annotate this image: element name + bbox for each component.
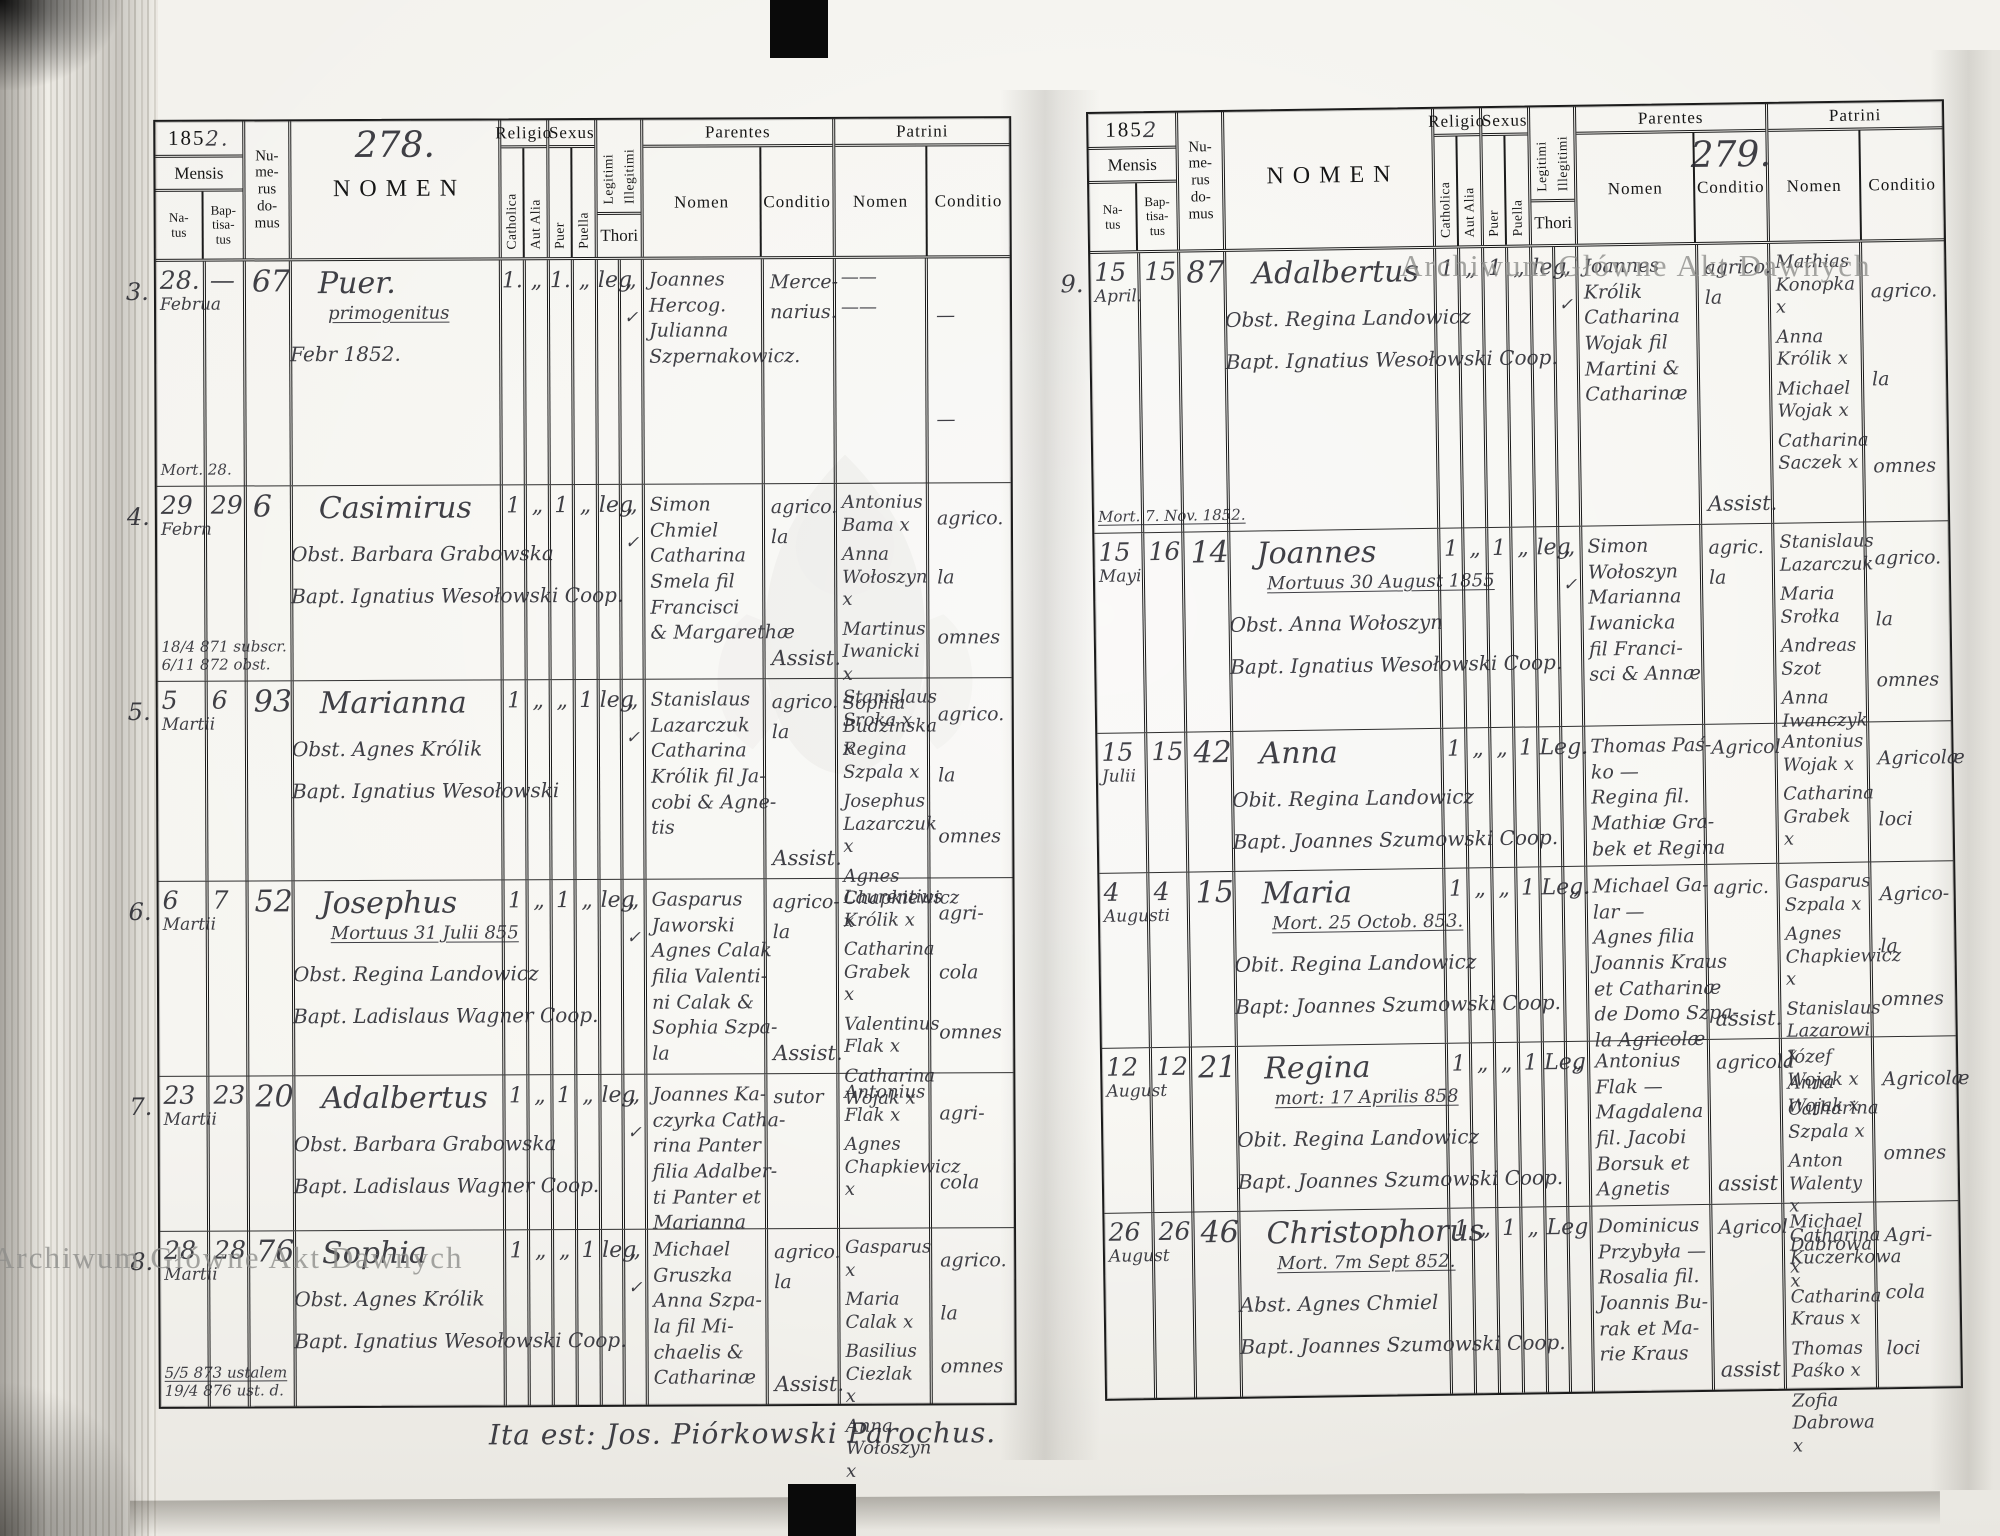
house-number-cell: 15 <box>1189 872 1238 1047</box>
patrini-conditio-cell: Agricolæloci <box>1869 721 1953 861</box>
register-row: 4.29Febrn18/4 871 subscr.6/11 872 obst.2… <box>157 483 1012 682</box>
parentes-label: Parentes <box>643 119 832 148</box>
natus-cell: 26August <box>1104 1213 1157 1399</box>
right-page-header: 279. 1852 Mensis Na- tus Bap- tisa- tus … <box>1088 101 1944 254</box>
patrini-name: Agnes Chapkiewicz x <box>1785 923 1868 992</box>
check-mark: ✓ <box>623 728 643 748</box>
catholica-label: Catholica <box>1437 181 1454 237</box>
row-number: 5. <box>128 698 151 726</box>
page-number-right: 279. <box>1690 134 1771 176</box>
baptisatus-day: 29 <box>207 492 244 517</box>
natus-day: 23 <box>163 1083 204 1108</box>
patrini-conditio-line: — <box>936 407 1008 433</box>
aut-alia-mark-cell: „ <box>526 260 551 484</box>
parents-name-line: la fil Mi- <box>653 1314 765 1340</box>
catholica-mark: 1 <box>504 690 525 712</box>
catholica-mark: 1 <box>503 495 524 517</box>
patrini-name: Catharina Kraus x <box>1790 1285 1873 1331</box>
patrini-conditio-line: omnes <box>938 824 1010 850</box>
thori-label: Thori <box>598 212 641 257</box>
house-number-cell: 67 <box>246 261 293 485</box>
catholica-mark: 1 <box>505 1085 526 1107</box>
natus-month: August <box>1106 1081 1147 1102</box>
legitimi-mark-cell: leg <box>598 260 622 484</box>
parents-name-line: Wojak fil <box>1584 330 1696 357</box>
baptisatus-day: 6 <box>208 687 245 712</box>
patrini-conditio-line: loci <box>1886 1335 1958 1362</box>
margin-note: Mort. 28. <box>161 461 202 480</box>
parents-name-line: Catharina <box>1584 304 1696 331</box>
catholica-label: Catholica <box>504 193 520 249</box>
register-row: 12August1221Reginamort: 17 Aprilis 858Ob… <box>1102 1036 1958 1214</box>
row-number: 3. <box>126 278 149 306</box>
patrini-conditio-cell: agrico.laomnes <box>1866 521 1951 721</box>
natus-month: August <box>1109 1246 1150 1267</box>
illegitimi-mark-cell <box>1562 727 1587 866</box>
margin-note: 19/4 876 ust. d. <box>165 1382 206 1401</box>
puella-mark: „ <box>577 890 598 912</box>
illegitimi-mark-cell: „✓ <box>1559 527 1585 726</box>
row-number: 7. <box>129 1093 152 1121</box>
puer-mark: 1 <box>1498 1218 1519 1240</box>
puer-mark: „ <box>554 1240 575 1262</box>
parents-conditio-line: Agricol <box>1711 732 1772 763</box>
illegitimi-mark: „ <box>623 690 643 712</box>
parents-name-line: Przybyła — <box>1598 1239 1710 1266</box>
parents-name-line: Joannes <box>649 267 761 293</box>
parents-name-line: Agnes Calak <box>652 939 764 965</box>
patrini-conditio-line: agrico. <box>1875 545 1947 572</box>
parents-name-line: rina Panter <box>653 1134 765 1160</box>
illegitimi-mark: „ <box>622 495 642 517</box>
right-page-table: 279. 1852 Mensis Na- tus Bap- tisa- tus … <box>1086 99 1963 1401</box>
register-row: 5.5Martii693MariannaObst. Agnes KrólikBa… <box>158 678 1013 882</box>
patrini-conditio-line: agrico. <box>937 506 1009 532</box>
natus-day: 4 <box>1103 879 1144 905</box>
parents-name-line: et Catharinæ <box>1594 975 1706 1002</box>
year-handwritten: 2. <box>205 126 229 150</box>
baptisatus-day: 23 <box>209 1082 246 1107</box>
puella-mark: 1 <box>1520 1052 1541 1074</box>
patrini-conditio-line: la <box>1875 606 1947 633</box>
parents-name-line: Wołoszyn <box>1588 559 1700 586</box>
register-row: 26August2646ChristophorusMort. 7m Sept 8… <box>1104 1201 1961 1399</box>
aut-alia-label: Aut Alia <box>527 199 543 249</box>
baptisatus-cell: 23 <box>209 1076 250 1230</box>
puella-mark: „ <box>575 495 596 517</box>
parents-conditio-lines: Agricol <box>1711 732 1772 763</box>
puella-mark-cell: „ <box>577 880 602 1074</box>
parents-name-line: rak et Ma- <box>1599 1315 1711 1342</box>
entry-note: Obst. Agnes Królik <box>292 736 501 761</box>
margin-note: 5/5 873 ustalem <box>165 1363 206 1382</box>
nomen-header-group: NOMEN <box>1224 109 1436 249</box>
patrini-conditio-line: agrico. <box>940 1248 1012 1274</box>
register-row: 9.15April.Mort. 7. Nov. 1852.1587Adalber… <box>1090 241 1948 534</box>
entry-note: mort: 17 Aprilis 858 <box>1275 1086 1446 1110</box>
house-number: 20 <box>255 1082 292 1112</box>
patrini-name: Maria Srołka <box>1780 583 1863 629</box>
child-name: Christophorus <box>1266 1217 1447 1250</box>
parents-conditio-line: agrico- <box>773 887 834 918</box>
parents-conditio-line: Agricol <box>1718 1212 1779 1243</box>
parish-attestation: Ita est: Jos. Piórkowski Parochus. <box>489 1416 996 1451</box>
parents-name-line: Joannis Kraus <box>1594 950 1706 977</box>
check-mark: ✓ <box>1556 295 1576 315</box>
name-cell: AnnaObit. Regina LandowiczBapt. Joannes … <box>1233 729 1445 871</box>
puer-mark: 1. <box>550 270 571 292</box>
entry-note: Obit. Regina Landowicz <box>1237 1125 1446 1152</box>
patrini-label: Patrini <box>1768 101 1942 132</box>
natus-day: 28. <box>160 268 201 293</box>
patrini-name: Catharina Saczek x <box>1778 429 1861 475</box>
patrini-conditio-line: omnes <box>1881 986 1953 1013</box>
name-cell: Reginamort: 17 Aprilis 858Obit. Regina L… <box>1238 1044 1450 1211</box>
baptisatus-day: 15 <box>1147 739 1184 765</box>
puella-mark-cell: „ <box>577 1075 602 1229</box>
assist-note: Assist. <box>1708 491 1769 516</box>
patrini-conditio-line: omnes <box>941 1354 1013 1380</box>
row-number: 6. <box>129 898 152 926</box>
parents-name-line: Simon <box>1587 533 1699 560</box>
parents-name-line: & Margarethæ <box>650 620 762 646</box>
house-number: 93 <box>254 687 291 717</box>
patrini-nomen-label: Nomen <box>835 147 927 256</box>
parents-conditio-lines: agricola <box>1716 1047 1777 1078</box>
register-row: 4Augusti415MariaMort. 25 Octob. 853.Obit… <box>1099 861 1956 1049</box>
nomen-label: NOMEN <box>324 176 466 204</box>
parents-name-cell: Joannes Ka-czyrka Catha-rina Panterfilia… <box>647 1074 768 1229</box>
entry-note: Mort. 25 Octob. 853. <box>1272 911 1443 935</box>
parents-name-line: Jaworski <box>652 913 764 939</box>
puella-mark: 1 <box>1517 877 1538 899</box>
patrini-name: Gasparus Szpala x <box>1784 871 1867 917</box>
parents-name-line: Michael Ga- <box>1592 873 1704 900</box>
patrini-name-cell: Michael Dabrowa xCatharina Kraus xThomas… <box>1784 1202 1879 1388</box>
illegitimi-mark-cell: „ <box>1564 867 1590 1041</box>
entry-note: Obst. Agnes Królik <box>294 1286 503 1311</box>
aut-alia-mark: „ <box>1469 878 1490 900</box>
illegitimi-mark-cell <box>1569 1207 1595 1392</box>
patrini-name: Zofia Dabrowa x <box>1792 1389 1875 1458</box>
aut-alia-mark: „ <box>529 890 550 912</box>
baptisatus-label: Bap- tisa- tus <box>204 191 243 258</box>
patrini-name: Agnes Chapkiewicz x <box>845 1134 927 1202</box>
entry-note: Bapt: Joannes Szumowski Coop. <box>1235 992 1444 1019</box>
spine-strip-top <box>770 0 828 58</box>
parents-name-line: rie Kraus <box>1599 1341 1711 1368</box>
patrini-name-cell: ———— <box>836 258 929 482</box>
margin-note: Mort. 7. Nov. 1852. <box>1098 508 1139 527</box>
patrini-conditio-line: omnes <box>1873 454 1945 481</box>
patrini-conditio-cell: Agrico-laomnes <box>1871 861 1956 1036</box>
parents-conditio-line: agrico. <box>774 1237 835 1268</box>
puer-mark: 1 <box>1488 538 1509 560</box>
illegitimi-mark: „ <box>625 1240 645 1262</box>
parents-name-line: ko — <box>1591 759 1703 786</box>
parents-conditio-line: narius. <box>770 297 831 328</box>
baptisatus-label: Bap- tisa- tus <box>1137 183 1177 251</box>
parents-name-line: Lazarczuk <box>651 713 763 739</box>
illegitimi-mark: „ <box>1564 877 1584 899</box>
puella-label: Puella <box>575 212 591 249</box>
puer-mark: „ <box>1493 878 1514 900</box>
legitimi-label: Legitimi <box>1533 141 1550 192</box>
puella-mark-cell: „ <box>1522 1207 1549 1392</box>
baptisatus-cell: 6 <box>208 681 249 880</box>
entry-note: Obst. Barbara Grabowska <box>291 541 500 566</box>
parents-conditio-lines: sutor <box>773 1082 834 1113</box>
puer-mark: „ <box>1496 1053 1517 1075</box>
parents-conditio-cell: agrico.laAssist. <box>766 679 839 878</box>
parents-name-line: de Domo Szpa- <box>1594 1001 1706 1028</box>
entry-note: Obst. Regina Landowicz <box>1225 305 1434 332</box>
sexus-header-group: Sexus Puer Puella <box>1482 107 1532 245</box>
patrini-name: Basilius Ciezlak x <box>846 1341 928 1409</box>
puer-mark-cell: „ <box>1493 868 1520 1042</box>
parents-name-line: chaelis & <box>654 1340 766 1366</box>
year-label: 1852. <box>155 121 242 157</box>
natus-day: 15 <box>1098 539 1139 565</box>
parents-conditio-lines: agrico.la <box>772 687 833 748</box>
natus-month: Febrn <box>161 520 202 540</box>
assist-note: Assist. <box>775 1372 836 1396</box>
natus-month: Augusti <box>1104 906 1145 927</box>
entry-note: Bapt. Joannes Szumowski Coop. <box>1238 1167 1447 1194</box>
patrini-conditio-cell: Agricolæomnes <box>1874 1036 1958 1201</box>
patrini-conditio-cell: agrico.laomnes <box>932 1228 1015 1403</box>
puer-mark: 1 <box>551 495 572 517</box>
natus-cell: 15April.Mort. 7. Nov. 1852. <box>1090 253 1144 533</box>
check-mark: ✓ <box>625 1123 645 1143</box>
parents-name-line: Joannis Bu- <box>1599 1290 1711 1317</box>
legitimi-mark: Leg. <box>1541 877 1561 899</box>
parents-name-line: fil Franci- <box>1589 635 1701 662</box>
house-number: 87 <box>1186 258 1223 289</box>
parents-name-line: Sophia Szpa- <box>652 1015 764 1041</box>
house-number: 46 <box>1200 1218 1237 1249</box>
parents-name-line: Dominicus <box>1597 1213 1709 1240</box>
archive-watermark-bottom-left: Archiwum Główne Akt Dawnych <box>0 1240 464 1276</box>
patrini-name: Laurentius Królik x <box>844 887 926 932</box>
parents-name-line: Julianna <box>649 319 761 345</box>
entry-note: Bapt. Ignatius Wesołowski Coop. <box>1226 347 1435 374</box>
parents-name-line: Stanislaus <box>651 687 763 713</box>
bottom-page-shadow <box>130 1491 1940 1534</box>
margin-notes: 18/4 871 subscr.6/11 872 obst. <box>161 637 202 675</box>
parents-name-cell: GasparusJaworskiAgnes Calakfilia Valenti… <box>647 879 768 1074</box>
parents-name-cell: SimonChmielCatharinaSmela filFrancisci& … <box>645 484 766 679</box>
patrini-name-cell: Stanislaus Sroka xRegina Szpala xJosephu… <box>838 678 931 877</box>
assist-note: assist <box>1718 1171 1779 1196</box>
patrini-conditio-line: agrico. <box>938 702 1010 728</box>
entry-note: Obst. Barbara Grabowska <box>294 1131 503 1156</box>
legitimi-mark: leg <box>601 1085 621 1107</box>
natus-day: 5 <box>162 688 203 713</box>
patrini-nomen-label: Nomen <box>1768 131 1862 241</box>
parents-conditio-line: la <box>774 1267 835 1298</box>
year-handwritten: 2 <box>1143 117 1159 141</box>
legitimi-mark-cell: Leg <box>1546 1207 1572 1392</box>
row-number: 4. <box>127 503 150 531</box>
aut-alia-mark: „ <box>1464 538 1485 560</box>
patrini-conditio-cell: —— <box>928 258 1011 482</box>
illegitimi-mark: „ <box>621 270 641 292</box>
puella-mark-cell: „ <box>574 260 599 484</box>
patrini-name: Regina Szpala x <box>843 739 925 784</box>
child-name: Josephus <box>321 888 502 919</box>
parents-name-line: Thomas Paś- <box>1590 733 1702 760</box>
baptisatus-day: — <box>206 267 243 292</box>
patrini-name: Józef Wojak x <box>1787 1045 1870 1091</box>
entry-note: Bapt. Joannes Szumowski Coop. <box>1233 827 1442 854</box>
legitimi-mark: Leg <box>1546 1217 1566 1239</box>
house-number: 52 <box>255 887 292 917</box>
legitimi-mark-cell: leg <box>602 1230 626 1405</box>
patrini-conditio-line: la <box>938 763 1010 789</box>
parentes-nomen-label: Nomen <box>643 147 762 257</box>
parents-name-line: ti Panter et <box>653 1185 765 1211</box>
aut-alia-mark: „ <box>528 690 549 712</box>
natus-cell: 6Martii <box>159 882 210 1076</box>
natus-month: Martii <box>164 1110 205 1130</box>
patrini-conditio-line: Agrico- <box>1880 881 1952 908</box>
baptisatus-cell: 12 <box>1152 1048 1194 1213</box>
puella-mark-cell: 1 <box>576 680 601 879</box>
parents-conditio-line: la <box>771 522 832 553</box>
name-cell: JosephusMortuus 31 Julii 855Obst. Regina… <box>295 880 506 1075</box>
patrini-name: Martinus Iwanicki x <box>842 618 924 686</box>
natus-cell: 15Julii <box>1097 733 1149 873</box>
patrini-name: Michael Wojak x <box>1777 377 1860 423</box>
child-name: Puer. <box>318 268 499 299</box>
house-number: 21 <box>1198 1053 1235 1084</box>
parents-conditio-lines: Agricol <box>1718 1212 1779 1243</box>
baptisatus-day: 12 <box>1152 1054 1189 1080</box>
sexus-header-group: Sexus Puer Puella <box>549 120 598 257</box>
entry-note: Bapt. Ignatius Wesołowski <box>292 778 501 803</box>
parentes-label: Parentes <box>1576 104 1765 135</box>
parents-name-cell: StanislausLazarczukCatharinaKrólik fil J… <box>646 679 767 879</box>
corner-shadow-bottom <box>0 1380 150 1536</box>
aut-alia-mark-cell: „ <box>1464 528 1491 727</box>
legitimi-mark: leg <box>600 690 620 712</box>
numerus-domus-label: Nu- me- rus do- mus <box>1178 112 1226 250</box>
house-number-cell: 93 <box>248 681 295 880</box>
name-cell: AdalbertusObst. Regina LandowiczBapt. Ig… <box>1226 249 1440 531</box>
child-name: Adalbertus <box>321 1083 502 1114</box>
legitimi-mark: leg <box>599 495 619 517</box>
patrini-name: Gasparus x <box>845 1237 927 1282</box>
parents-name-line: Chmiel <box>650 518 762 544</box>
parents-name-line: Agnes filia <box>1593 924 1705 951</box>
legitimi-mark-cell: leg <box>601 880 625 1074</box>
assist-note: Assist. <box>772 846 833 870</box>
assist-note: Assist. <box>771 646 832 670</box>
puer-mark-cell: 1 <box>553 880 578 1074</box>
legitimi-mark-cell: Leg. <box>1541 867 1567 1041</box>
patrini-name: Andreas Szot <box>1781 635 1864 681</box>
patrini-conditio-line: omnes <box>1876 667 1948 694</box>
patrini-name: Anna Wołoszyn x <box>842 544 924 612</box>
parents-conditio-lines: agrico-la <box>773 887 834 948</box>
parents-name-line: Królik fil Ja- <box>651 764 763 790</box>
thori-label: Thori <box>1531 199 1575 245</box>
patrini-conditio-line: loci <box>1878 807 1950 834</box>
catholica-mark-cell: 1. <box>502 260 527 484</box>
patrini-conditio-line: agri- <box>939 1101 1011 1127</box>
parents-name-cell: SimonWołoszynMariannaIwanickafil Franci-… <box>1582 525 1705 726</box>
natus-month: Mayi <box>1099 566 1140 587</box>
parents-name-line: Anna Szpa- <box>653 1288 765 1314</box>
natus-month: Martii <box>162 715 203 735</box>
patrini-header-group: Patrini Nomen Conditio <box>1768 101 1944 241</box>
row-number: 9. <box>1060 270 1083 298</box>
patrini-conditio-line: Agricolæ <box>1877 745 1949 772</box>
patrini-label: Patrini <box>835 118 1009 147</box>
parentes-header-group: Parentes Nomen Conditio <box>643 119 836 257</box>
parents-name-line: la <box>652 1041 764 1067</box>
aut-alia-mark: „ <box>530 1240 551 1262</box>
illegitimi-mark-cell: „✓ <box>622 485 646 679</box>
house-number: 14 <box>1190 538 1227 569</box>
catholica-mark: 1. <box>502 270 523 292</box>
legitimi-mark: leg <box>598 270 618 292</box>
patrini-conditio-line: la <box>1872 366 1944 393</box>
puer-label: Puer <box>1486 210 1502 237</box>
illegitimi-mark-cell: „✓ <box>621 260 645 484</box>
assist-note: Assist. <box>773 1041 834 1065</box>
parents-name-line: Magdalena <box>1596 1099 1708 1126</box>
patrini-name: Anna Królik x <box>1776 325 1859 371</box>
puella-mark-cell: „ <box>1512 527 1539 726</box>
sexus-label: Sexus <box>549 120 594 148</box>
patrini-name: Stanislaus Sroka x <box>843 687 925 732</box>
natus-day: 6 <box>163 888 204 913</box>
parents-conditio-lines: agrico.la <box>771 492 832 553</box>
illegitimi-mark-cell: „✓ <box>623 680 647 879</box>
parentes-nomen-label: Nomen <box>1576 133 1696 244</box>
patrini-conditio-cell: agrico.laomnes <box>930 678 1013 877</box>
register-row: 3.28.FebruaMort. 28.—67Puer.primogenitus… <box>156 258 1011 487</box>
catholica-mark: 1 <box>506 1240 527 1262</box>
religio-header-group: Religio Catholica Aut Alia <box>501 120 550 257</box>
house-number-cell: 52 <box>249 881 296 1075</box>
entry-note: Obst. Regina Landowicz <box>293 961 502 986</box>
patrini-conditio-line: agrico. <box>1871 278 1943 305</box>
illegitimi-label: Illegitimi <box>622 149 638 204</box>
name-cell: ChristophorusMort. 7m Sept 852.Abst. Agn… <box>1240 1209 1453 1397</box>
mensis-label: Mensis <box>155 157 242 191</box>
natus-label: Na- tus <box>156 192 205 259</box>
catholica-mark: 1 <box>1443 738 1464 760</box>
legitimi-label: Legitimi <box>600 153 616 204</box>
illegitimi-mark-cell: „✓ <box>624 880 648 1074</box>
natus-day: 15 <box>1101 739 1142 765</box>
catholica-mark: 1 <box>1445 878 1466 900</box>
natus-month: Julii <box>1102 766 1143 787</box>
patrini-conditio-line: cola <box>1885 1279 1957 1306</box>
religio-header-group: Religio Catholica Aut Alia <box>1434 108 1484 246</box>
parents-name-line: Iwanicka <box>1588 610 1700 637</box>
aut-alia-mark: „ <box>1467 738 1488 760</box>
margin-note: 6/11 872 obst. <box>162 656 203 675</box>
parents-name-line: Agnetis <box>1597 1176 1709 1203</box>
religio-label: Religio <box>501 120 546 148</box>
patrini-name: Antonius Flak x <box>844 1082 926 1127</box>
nomen-header-group: 278. NOMEN <box>291 120 502 258</box>
puella-mark-cell: 1 <box>578 1230 603 1405</box>
